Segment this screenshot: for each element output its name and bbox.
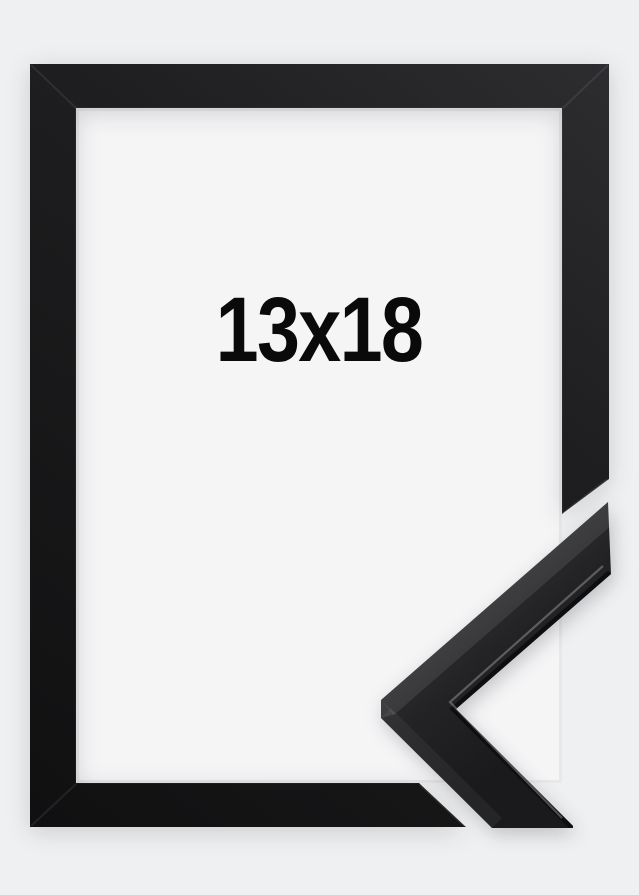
frame-opening xyxy=(76,108,562,783)
product-photo: 13x18 xyxy=(0,0,639,895)
frame-illustration xyxy=(0,0,639,895)
